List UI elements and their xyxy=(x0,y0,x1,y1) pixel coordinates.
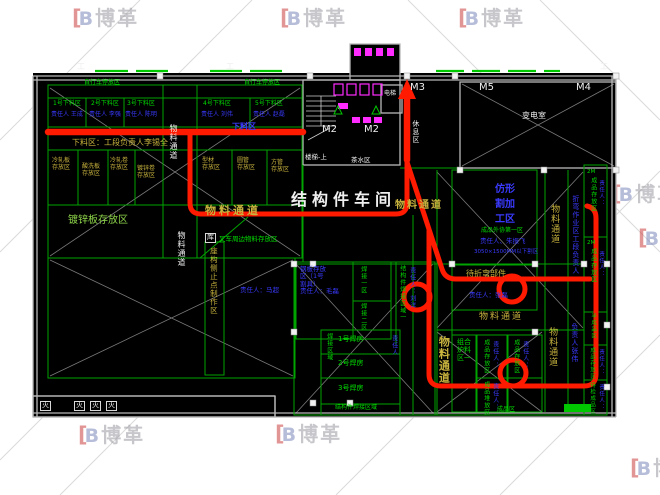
column-marker xyxy=(613,73,619,79)
red-route-segment xyxy=(190,132,407,214)
toilet-stall-icon xyxy=(360,84,369,95)
column-marker xyxy=(581,261,587,267)
zone-outline xyxy=(205,242,224,375)
column-marker xyxy=(157,73,163,79)
floorplan-canvas: [B博革[B博革[B博革[B博革[B博革[B博革[B博革[B博革 自行车停放区自… xyxy=(0,0,660,495)
red-route-arrowhead-icon xyxy=(398,79,416,99)
wall-rect xyxy=(303,80,400,165)
column-marker xyxy=(347,400,353,406)
column-marker xyxy=(452,73,458,79)
wall-rect xyxy=(33,396,275,417)
column-marker xyxy=(310,261,316,267)
column-marker xyxy=(604,322,610,328)
toilet-fixture-icon xyxy=(352,117,360,123)
column-marker xyxy=(457,167,463,173)
toilet-stall-icon xyxy=(334,84,343,95)
column-marker xyxy=(310,400,316,406)
zone-outline xyxy=(452,170,537,265)
red-route-loop xyxy=(404,284,430,310)
zone-outline xyxy=(353,301,391,339)
stair-step-line xyxy=(308,128,330,140)
column-marker xyxy=(604,261,610,267)
red-route-loop xyxy=(500,360,526,386)
column-marker xyxy=(291,261,297,267)
zone-outline xyxy=(353,262,391,301)
column-marker xyxy=(613,167,619,173)
red-route-segment xyxy=(407,162,590,279)
zone-outline xyxy=(477,335,508,412)
plant-icon xyxy=(372,106,380,114)
toilet-fixture-icon xyxy=(376,48,383,56)
column-marker xyxy=(404,73,410,79)
column-marker xyxy=(291,329,297,335)
column-marker xyxy=(532,329,538,335)
column-marker xyxy=(541,167,547,173)
green-filled-bar xyxy=(564,404,591,412)
toilet-stall-icon xyxy=(347,84,356,95)
column-marker xyxy=(532,261,538,267)
toilet-fixture-icon xyxy=(374,117,382,123)
cad-linework xyxy=(0,0,660,495)
toilet-fixture-icon xyxy=(365,48,372,56)
column-marker xyxy=(449,261,455,267)
toilet-fixture-icon xyxy=(354,48,361,56)
toilet-fixture-icon xyxy=(387,48,394,56)
column-marker xyxy=(604,384,610,390)
column-marker xyxy=(307,73,313,79)
zone-outline xyxy=(321,330,400,404)
toilet-fixture-icon xyxy=(363,117,371,123)
